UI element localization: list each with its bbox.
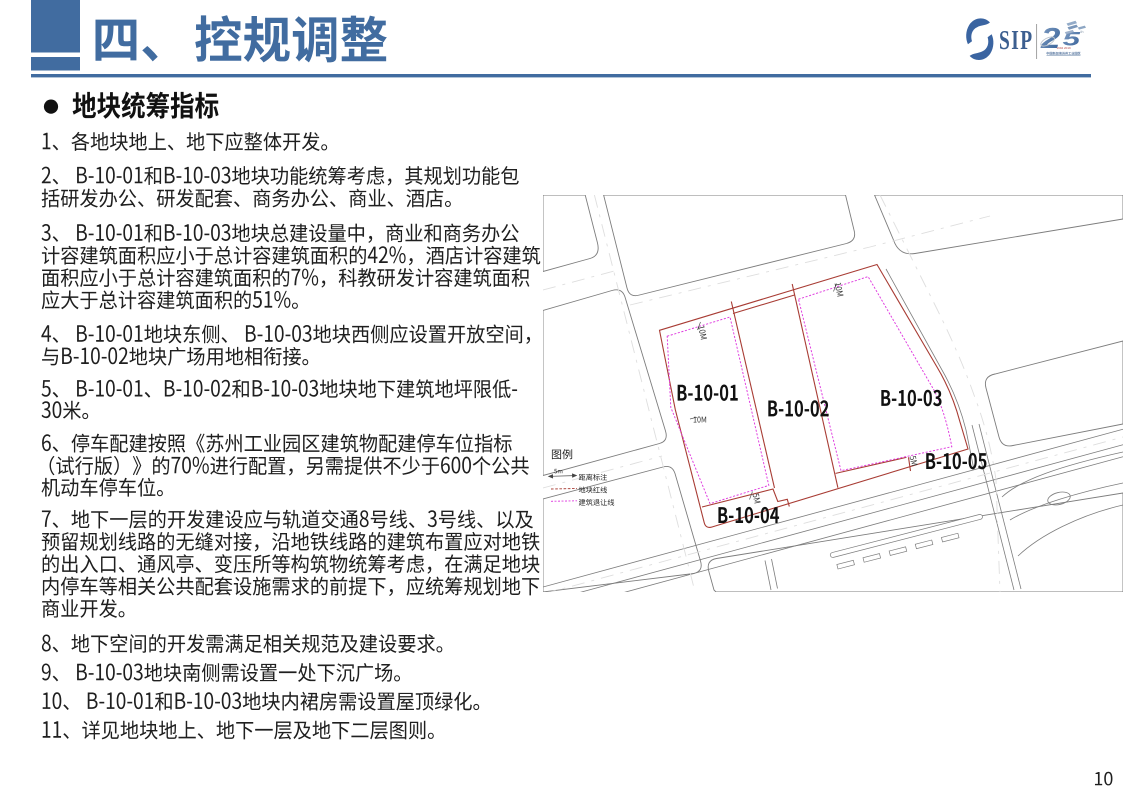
svg-text:1994 2019: 1994 2019 [1057,46,1072,50]
svg-text:th: th [1081,30,1084,34]
svg-text:SIP: SIP [999,26,1034,56]
